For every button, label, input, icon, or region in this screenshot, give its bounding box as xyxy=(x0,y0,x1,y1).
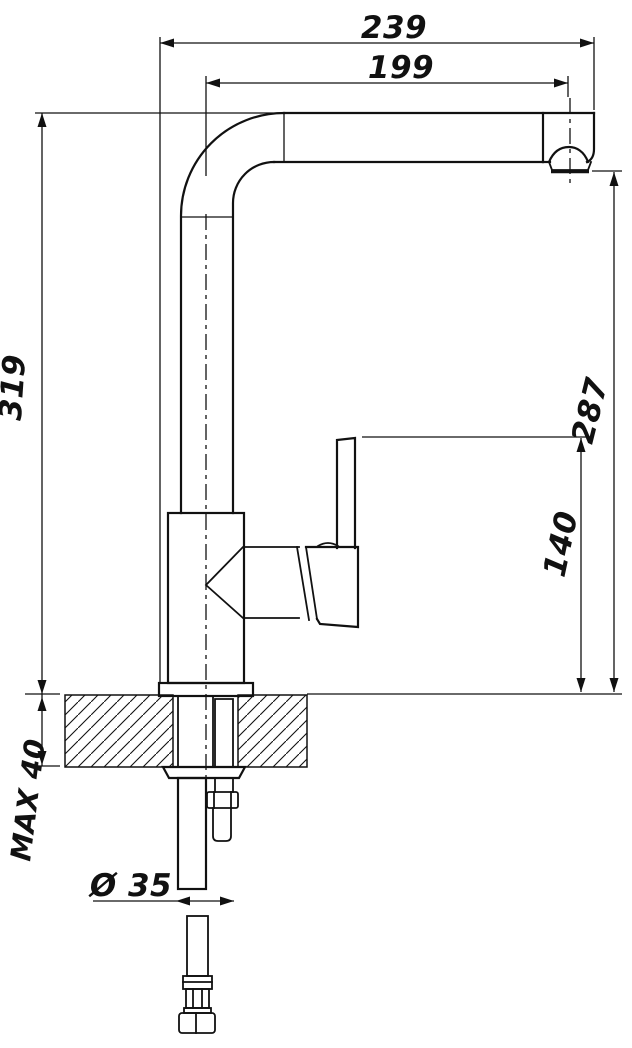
countertop-hatch-right xyxy=(238,695,307,767)
dimension-239: 239 xyxy=(160,10,594,683)
arrowhead-left xyxy=(206,79,220,88)
supply-hose xyxy=(179,916,215,1033)
aerator-dome xyxy=(549,147,588,162)
dimension-max40: MAX 40 xyxy=(4,694,60,863)
spout-head-right-edge xyxy=(587,113,594,162)
arrowhead-right xyxy=(554,79,568,88)
dim-max40-label: MAX 40 xyxy=(4,737,52,863)
handle-cap-arc xyxy=(318,543,338,546)
threaded-rod-upper xyxy=(215,699,233,767)
dim-319-label: 319 xyxy=(0,353,33,422)
dimension-140: 140 xyxy=(362,437,590,692)
handle-base-block xyxy=(306,547,358,627)
elbow-inner-curve xyxy=(233,162,274,513)
mounting-hardware xyxy=(163,696,245,889)
arrowhead-up xyxy=(38,697,47,711)
dimension-319: 319 xyxy=(0,113,60,694)
arrowhead-down xyxy=(610,678,619,692)
arrowhead-up xyxy=(610,172,619,186)
technical-drawing-page: 239 199 319 MAX 40 287 14 xyxy=(0,0,632,1048)
dim-d35-label: Ø 35 xyxy=(88,868,172,904)
dim-239-label: 239 xyxy=(361,10,427,46)
countertop xyxy=(65,694,622,767)
cartridge-cone xyxy=(206,547,299,618)
dim-140-label: 140 xyxy=(537,508,586,580)
arrowhead-left xyxy=(176,897,190,906)
mounting-shank-tube xyxy=(178,778,206,889)
arrowhead-down xyxy=(38,680,47,694)
hose-tube xyxy=(187,916,208,976)
dim-287-label: 287 xyxy=(565,374,616,447)
cartridge-housing xyxy=(206,543,358,627)
hose-braid xyxy=(186,989,209,1008)
dim-199-label: 199 xyxy=(368,50,434,86)
threaded-stud xyxy=(213,808,231,841)
dimension-287: 287 xyxy=(565,171,622,692)
spout-head xyxy=(543,113,594,172)
faucet-outline xyxy=(35,113,594,696)
faucet-dimension-drawing: 239 199 319 MAX 40 287 14 xyxy=(0,0,632,1048)
mounting-nut xyxy=(207,792,238,808)
hose-hex-fitting xyxy=(179,1013,215,1033)
arrowhead-down xyxy=(577,678,586,692)
countertop-hatch-left xyxy=(65,695,173,767)
arrowhead-right xyxy=(580,39,594,48)
arrowhead-right xyxy=(220,897,234,906)
arrowhead-up xyxy=(38,113,47,127)
mounting-washer xyxy=(163,767,245,778)
dimension-hole-diameter: Ø 35 xyxy=(88,868,234,906)
handle-lever xyxy=(337,438,355,548)
arrowhead-left xyxy=(160,39,174,48)
